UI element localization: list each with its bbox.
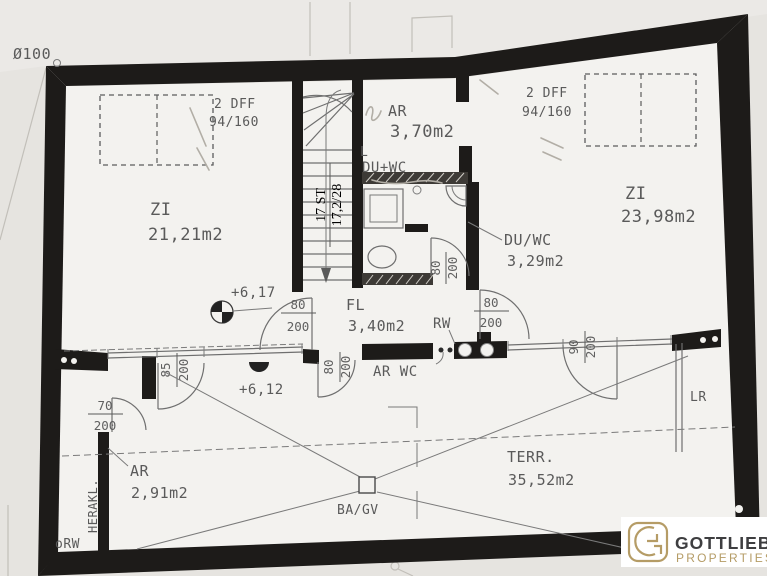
level-upper-label: +6,17 (231, 285, 276, 301)
diameter-note: Ø100 (13, 45, 51, 63)
window-left-label: 2 DFF (214, 97, 256, 112)
l-mark: L (360, 145, 368, 160)
ar-wc-label: AR WC (373, 364, 418, 380)
stair-dim-label: 17,2/28 (330, 184, 345, 226)
shower-partition-stub (405, 224, 428, 232)
lr-label: LR (690, 390, 707, 405)
pier-dot (700, 337, 706, 343)
room-fl-name: FL (346, 296, 365, 314)
door-size-label: 80 (483, 295, 498, 310)
wall-pipe-dot (735, 505, 743, 513)
door-size-label: 70 (97, 398, 112, 413)
level-lower-label: +6,12 (239, 382, 284, 398)
terrace-drain (359, 477, 375, 493)
pier-dot (712, 336, 718, 342)
facade-mid-black (362, 343, 433, 360)
door-size-label: 200 (176, 359, 191, 382)
room-terrace-area: 35,52m2 (508, 471, 575, 489)
room-zi-left-name: ZI (150, 200, 171, 220)
facade-pier-small (303, 349, 319, 364)
door-size-label: 80 (428, 260, 443, 275)
room-duwc-name: DU/WC (504, 231, 552, 249)
door-size-label: 90 (566, 339, 581, 354)
door-size-label: 200 (338, 356, 353, 379)
stair-count-label: 17 ST (314, 188, 329, 222)
stairs-left-wall (292, 79, 303, 292)
room-fl-area: 3,40m2 (348, 317, 405, 335)
room-zi-right-area: 23,98m2 (621, 207, 696, 227)
door-size-label: 200 (287, 319, 310, 334)
rw-label: RW (433, 316, 451, 332)
room-zi-left-area: 21,21m2 (148, 225, 223, 245)
room-duwc-area: 3,29m2 (507, 252, 564, 270)
room-zi-right-name: ZI (625, 184, 646, 204)
fixture-dot (439, 348, 444, 353)
floor-plan-canvas: 17 ST 17,2/28 80 200 80 200 80 200 80 (0, 0, 767, 576)
logo-tagline: PROPERTIES (676, 551, 767, 565)
door-size-label: 200 (480, 315, 503, 330)
room-terrace-name: TERR. (507, 448, 555, 466)
door-size-label: 80 (290, 297, 305, 312)
room-ar-top-name: AR (388, 102, 408, 120)
door-size-label: 200 (583, 336, 598, 359)
room-ar-bottom-area: 2,91m2 (131, 484, 188, 502)
door-size-label: 80 (321, 359, 336, 374)
room-ar-bottom-name: AR (130, 462, 150, 480)
bath-left-wall (352, 78, 363, 288)
ar-bottom-wall-upper (142, 356, 156, 399)
fixture-tab (477, 332, 491, 343)
pier-dot (71, 358, 77, 364)
du-wc-small-label: DU+WC (362, 160, 407, 176)
ar-right-wall-upper (456, 71, 469, 102)
rw-basin-circle (481, 344, 494, 357)
logo-name: GOTTLIEB (675, 533, 767, 553)
door-size-label: 200 (94, 418, 117, 433)
orw-label: oRW (55, 537, 80, 552)
pier-dot (61, 357, 67, 363)
ba-gv-label: BA/GV (337, 503, 379, 518)
bath-right-wall (466, 182, 479, 290)
fixture-dot (448, 348, 453, 353)
herakl-label: HERAKL. (86, 479, 100, 533)
window-left-size: 94/160 (209, 115, 259, 130)
door-size-label: 200 (445, 257, 460, 280)
window-right-label: 2 DFF (526, 86, 568, 101)
rw-basin-circle (459, 344, 472, 357)
room-ar-top-area: 3,70m2 (390, 122, 454, 142)
window-right-size: 94/160 (522, 105, 572, 120)
logo-gottlieb-properties: GOTTLIEB PROPERTIES (621, 517, 767, 567)
scanned-floor-plan-page: 17 ST 17,2/28 80 200 80 200 80 200 80 (0, 0, 767, 576)
